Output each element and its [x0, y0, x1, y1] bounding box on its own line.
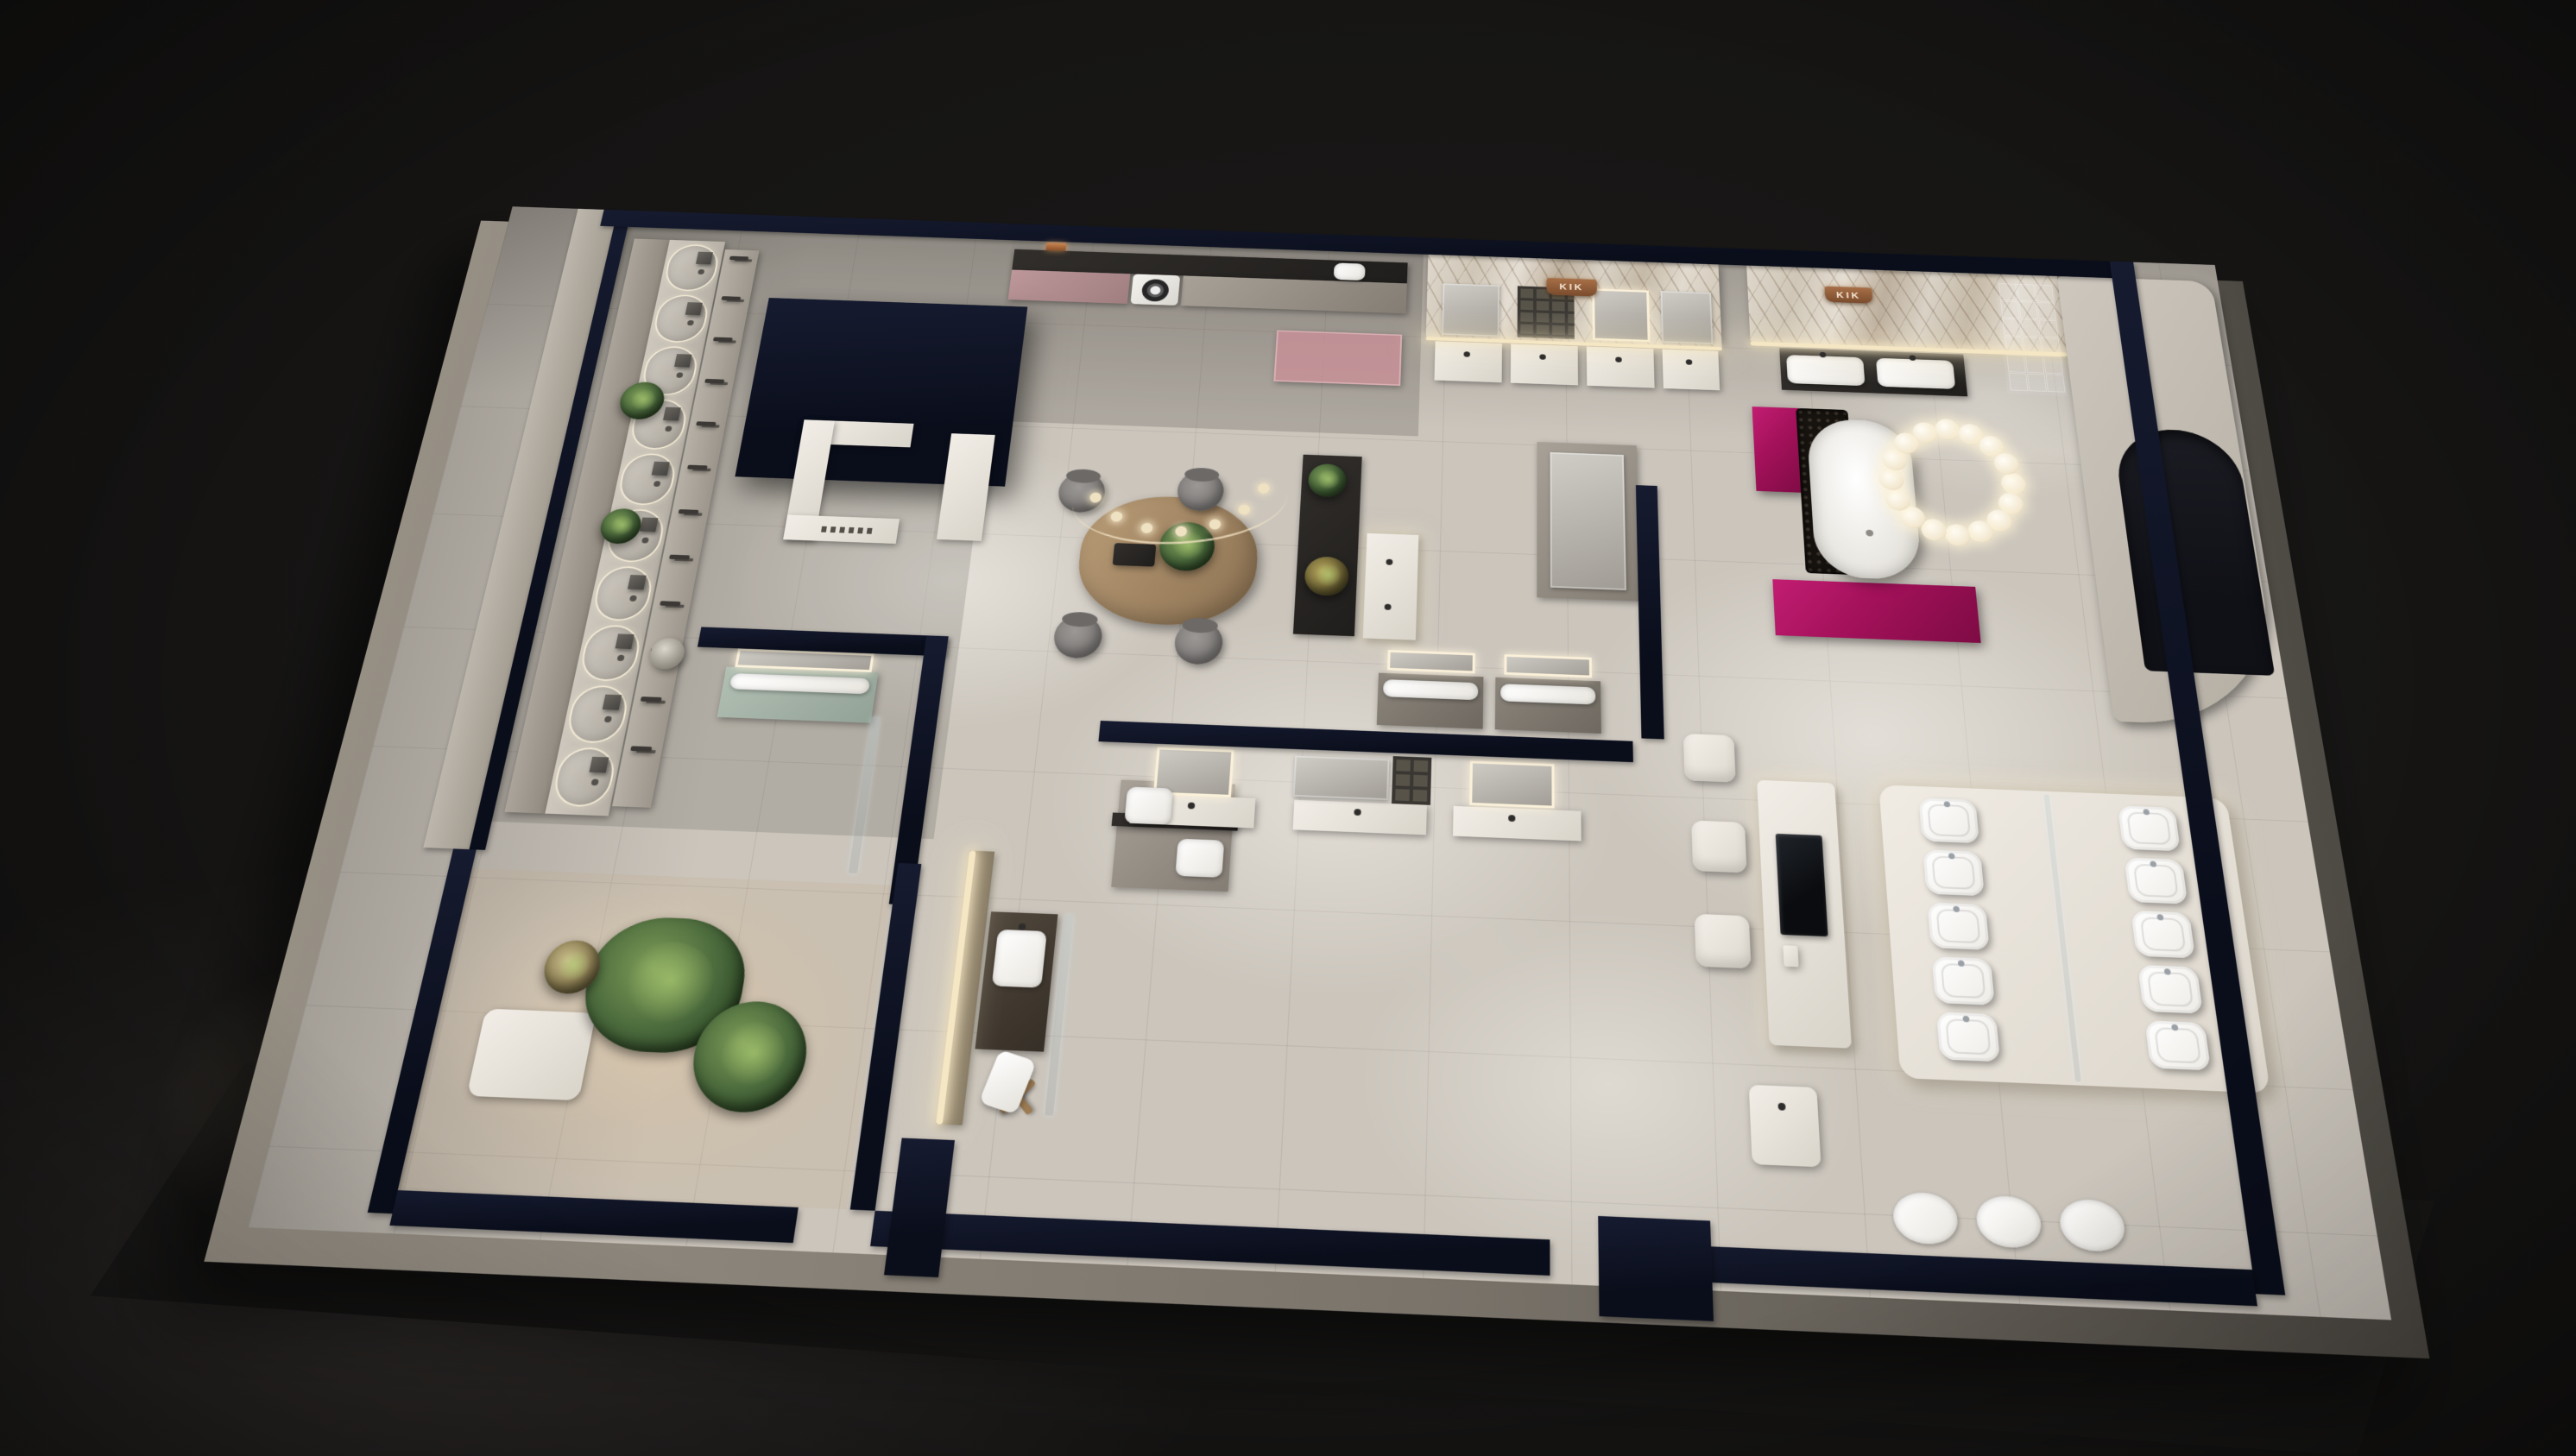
led-bar-mirror: [1469, 760, 1554, 808]
faucet-stand: [687, 465, 708, 470]
light-sphere: [2000, 473, 2027, 495]
cube-chair: [1695, 914, 1752, 969]
planter-bench: [466, 1009, 596, 1101]
shower-column-bay: [578, 624, 644, 682]
glass-block: [2039, 320, 2059, 338]
glass-block: [2027, 374, 2047, 392]
embedded-screen: [1776, 834, 1828, 936]
display-toilet: [2131, 911, 2195, 958]
glass-block: [2021, 319, 2041, 337]
light-sphere: [1993, 452, 2020, 475]
basin: [1124, 786, 1173, 824]
shower-column-bay: [564, 684, 631, 744]
shower-column-bay: [651, 294, 711, 344]
vanity-top: [1500, 684, 1595, 704]
basin: [1786, 355, 1866, 386]
basin: [992, 930, 1047, 988]
column: [937, 433, 995, 541]
pendant-spotlight: [1257, 483, 1269, 494]
zone-service-counter: [782, 419, 1006, 553]
faucet-stand: [669, 555, 690, 560]
ring-chandelier: [1869, 413, 2039, 554]
faucet: [1686, 359, 1693, 365]
glass-block: [2000, 300, 2019, 318]
light-sphere: [1944, 524, 1972, 547]
vanity-counter: [1453, 806, 1582, 841]
faucet: [1777, 1103, 1785, 1111]
display-toilet: [1923, 849, 1984, 896]
glass-block: [2009, 373, 2029, 391]
glass-block: [2025, 355, 2045, 373]
glass-block: [2045, 374, 2065, 392]
rose-cabinets: [1008, 270, 1131, 304]
kik-sign: KIK: [1547, 278, 1597, 297]
vanity-mirror-led: [1592, 288, 1650, 342]
remote-control: [1783, 945, 1798, 967]
display-toilet: [2144, 1020, 2211, 1070]
back-vanity: [1377, 650, 1484, 729]
pedestal-basin: [1749, 1085, 1822, 1168]
display-toilet: [1936, 1012, 2000, 1062]
curved-pendant-light: [1072, 451, 1290, 550]
faucet: [1508, 815, 1515, 822]
vanity-base: [1587, 346, 1655, 388]
faucet-stand: [696, 421, 716, 426]
washing-machine: [1130, 274, 1180, 306]
glass-block: [2017, 284, 2036, 301]
glass-block: [2018, 301, 2038, 319]
faucet: [1463, 351, 1470, 356]
basin-counter: [1363, 533, 1419, 640]
light-sphere: [1878, 469, 1905, 491]
building-floorplate: KIK KIK: [248, 206, 2391, 1320]
glass-block: [2006, 355, 2026, 373]
faucet-stand: [679, 509, 699, 514]
light-sphere: [1935, 419, 1961, 440]
display-toilet: [2137, 965, 2203, 1014]
faucet-stand: [660, 601, 680, 606]
display-toilet: [2125, 857, 2188, 904]
display-toilet: [1927, 903, 1989, 950]
display-toilet: [1932, 956, 1995, 1005]
back-vanity: [1495, 654, 1601, 734]
glass-block: [1998, 283, 2017, 300]
shower-column-bay: [590, 565, 655, 621]
kik-sign: KIK: [1824, 287, 1872, 304]
copper-wall-light: [1045, 243, 1066, 251]
faucet: [1539, 354, 1545, 359]
vanity-base: [1663, 349, 1720, 390]
faucet-stand: [713, 337, 733, 342]
glass-block: [2002, 318, 2022, 337]
shower-column-bay: [550, 747, 618, 808]
faucet: [1909, 355, 1916, 361]
vanity-base: [1434, 341, 1502, 382]
faucet-stand: [630, 746, 652, 752]
faucet: [1615, 356, 1622, 362]
zone-feature-wall: KIK: [1424, 255, 1731, 398]
door-stub-wall: [1598, 1216, 1714, 1321]
glass-block: [2036, 302, 2056, 320]
magenta-console: [1772, 579, 1980, 643]
faucet: [1820, 352, 1827, 357]
light-sphere: [1885, 488, 1911, 511]
glass-divider: [2043, 795, 2080, 1082]
wide-mirror: [1293, 755, 1390, 800]
side-shelf: [1392, 756, 1431, 805]
faucet-stand: [722, 296, 742, 300]
display-toilet: [1918, 797, 1979, 843]
glass-block: [2035, 285, 2055, 302]
vanity-counter: [1293, 800, 1427, 835]
vanity-mirror: [1442, 283, 1500, 337]
vanity-mirror: [1661, 291, 1714, 344]
vanity-base: [1511, 344, 1578, 385]
mirror-band: [1550, 452, 1626, 590]
showroom-aerial-render: KIK KIK: [0, 0, 2576, 1456]
front-vanity: [1453, 759, 1587, 843]
faucet-stand: [704, 379, 724, 384]
mirror-led: [1504, 654, 1592, 678]
front-vanity: [1291, 753, 1435, 837]
glass-block: [2043, 356, 2063, 374]
kitchen-sink: [1334, 262, 1366, 280]
shower-column-bay: [662, 243, 722, 292]
vanity-top: [1383, 679, 1478, 700]
cube-chair: [1691, 820, 1746, 873]
basin: [1175, 839, 1224, 878]
side-table: [1683, 734, 1736, 783]
mirror-led: [1387, 650, 1475, 673]
basin: [1876, 358, 1955, 389]
display-toilet: [2118, 805, 2181, 851]
faucet-stand: [729, 256, 748, 261]
pink-glass-screen: [1273, 331, 1402, 386]
faucet-stand: [641, 696, 662, 702]
shower-column-bay: [616, 452, 679, 506]
